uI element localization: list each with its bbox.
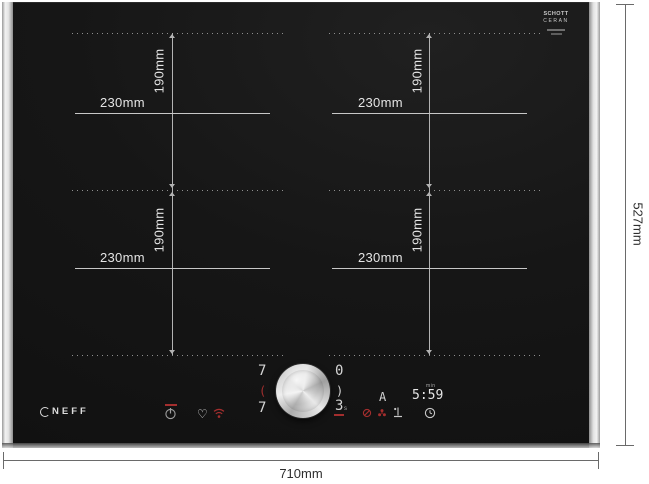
width-dim-cap-right bbox=[598, 452, 599, 469]
zone-width-label: 230mm bbox=[358, 250, 403, 265]
zone-display-right-top: 0 bbox=[335, 363, 343, 379]
microprint-line bbox=[551, 33, 562, 35]
zone-selector-right: ) bbox=[336, 384, 343, 398]
microprint-line bbox=[547, 29, 565, 31]
zone-display-left-bottom: 7 bbox=[258, 400, 266, 416]
favorite-heart-icon[interactable]: ♡ bbox=[197, 408, 208, 420]
zone-height-label: 190mm bbox=[410, 49, 425, 94]
arrow-icon bbox=[426, 184, 432, 188]
zone-boundary-top-right bbox=[329, 33, 540, 34]
vent-fan-icon[interactable] bbox=[377, 408, 387, 418]
zone-boundary-top-left bbox=[72, 33, 283, 34]
height-dim-line bbox=[625, 4, 626, 446]
product-dimension-diagram: 230mm 190mm 230mm 190mm 230mm 190mm 230m… bbox=[0, 0, 649, 484]
zone-width-label: 230mm bbox=[100, 95, 145, 110]
twistpad-knob[interactable] bbox=[276, 364, 330, 418]
neff-logo: NEFF bbox=[40, 406, 89, 417]
schott-ceran-logo-line2: CERAN bbox=[543, 18, 569, 24]
schott-ceran-logo: SCHOTT CERAN bbox=[543, 11, 569, 35]
zone-indicator-bar bbox=[334, 414, 344, 416]
timer-display: 5:59 bbox=[412, 388, 443, 403]
arrow-icon bbox=[426, 192, 432, 196]
zone-boundary-mid-left bbox=[72, 190, 283, 191]
pan-detection-icon[interactable] bbox=[362, 408, 372, 418]
zone-display-right-bottom-sub: s bbox=[344, 406, 347, 412]
arrow-icon bbox=[426, 350, 432, 354]
zone-boundary-bottom-left bbox=[72, 355, 283, 356]
zone-height-label: 190mm bbox=[152, 208, 167, 253]
left-metal-trim bbox=[2, 2, 13, 448]
zone-boundary-bottom-right bbox=[329, 355, 540, 356]
overall-width-label: 710mm bbox=[279, 466, 322, 481]
timer-clock-icon[interactable] bbox=[424, 407, 436, 419]
zone-selector-left: ( bbox=[259, 384, 266, 398]
width-dim-line bbox=[3, 460, 599, 461]
neff-logo-text: NEFF bbox=[52, 406, 89, 417]
right-metal-trim bbox=[589, 2, 600, 448]
arrow-icon bbox=[169, 192, 175, 196]
wifi-icon[interactable] bbox=[213, 408, 225, 419]
arrow-icon bbox=[426, 34, 432, 38]
zone-width-label: 230mm bbox=[358, 95, 403, 110]
height-dim-cap-bottom bbox=[616, 445, 634, 446]
width-dim-line-bottom-right bbox=[332, 268, 527, 269]
power-indicator-bar bbox=[165, 404, 177, 406]
frying-sensor-icon[interactable] bbox=[392, 406, 404, 419]
zone-height-label: 190mm bbox=[410, 208, 425, 253]
zone-display-left-top: 7 bbox=[258, 363, 266, 379]
arrow-icon bbox=[169, 184, 175, 188]
arrow-icon bbox=[169, 350, 175, 354]
width-dim-line-top-right bbox=[332, 113, 527, 114]
width-dim-line-top-left bbox=[75, 113, 270, 114]
schott-ceran-logo-line1: SCHOTT bbox=[543, 11, 569, 17]
front-metal-trim bbox=[2, 443, 600, 448]
power-icon[interactable] bbox=[164, 407, 177, 420]
overall-height-label: 527mm bbox=[631, 202, 646, 245]
mode-indicator-display: A bbox=[379, 390, 386, 404]
zone-width-label: 230mm bbox=[100, 250, 145, 265]
arrow-icon bbox=[169, 34, 175, 38]
width-dim-line-bottom-left bbox=[75, 268, 270, 269]
neff-logo-arc-icon bbox=[40, 407, 50, 417]
zone-display-right-bottom: 3 bbox=[335, 398, 343, 414]
zone-boundary-mid-right bbox=[329, 190, 540, 191]
zone-height-label: 190mm bbox=[152, 49, 167, 94]
